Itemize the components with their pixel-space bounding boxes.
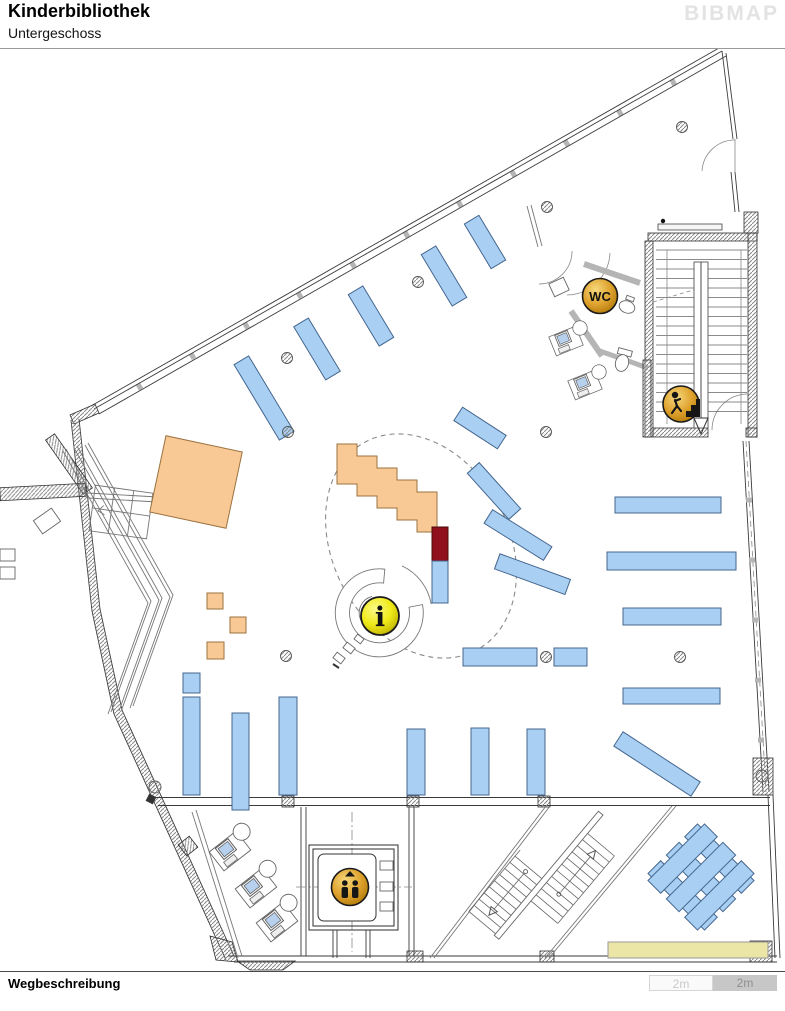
wc-marker[interactable]: WC bbox=[583, 279, 618, 314]
shelves-right-fan bbox=[454, 407, 587, 666]
stair-hall-lower bbox=[430, 789, 676, 962]
wegbeschreibung-link[interactable]: Wegbeschreibung bbox=[8, 976, 120, 991]
computer-workstation bbox=[232, 857, 286, 908]
bibmap-logo: BIBMAP bbox=[684, 2, 779, 26]
floorplan-canvas: WC i bbox=[0, 0, 785, 1011]
header: Kinderbibliothek Untergeschoss BIBMAP bbox=[0, 0, 785, 49]
page-title: Kinderbibliothek bbox=[8, 1, 150, 22]
wc-room bbox=[527, 205, 651, 437]
scale-bar: 2m 2m bbox=[649, 975, 777, 991]
floor-subtitle: Untergeschoss bbox=[8, 25, 101, 41]
elevator-marker[interactable] bbox=[332, 869, 369, 906]
shelves-right-column bbox=[607, 497, 736, 704]
northeast-wall-and-door bbox=[702, 51, 758, 233]
shelves-top-fan bbox=[234, 215, 506, 440]
info-marker-label: i bbox=[375, 602, 385, 633]
north-window-wall bbox=[70, 48, 726, 424]
wc-sink bbox=[617, 294, 638, 315]
stage-square bbox=[150, 436, 243, 529]
red-bar bbox=[432, 527, 448, 561]
computer-workstation bbox=[206, 820, 260, 871]
exterior-stub bbox=[237, 961, 295, 970]
info-marker[interactable]: i bbox=[361, 597, 399, 635]
columns bbox=[281, 122, 688, 663]
wc-marker-label: WC bbox=[589, 289, 611, 304]
stairwell-upper bbox=[645, 219, 757, 437]
podium-steps bbox=[337, 444, 437, 532]
inner-bars bbox=[432, 527, 448, 603]
stairs-marker[interactable] bbox=[663, 386, 700, 422]
orange-cubes bbox=[207, 593, 246, 659]
shelves-lattice bbox=[648, 824, 754, 930]
footer: Wegbeschreibung 2m 2m bbox=[0, 971, 785, 1011]
bench-strip bbox=[608, 942, 768, 958]
scale-segment-light: 2m bbox=[649, 975, 713, 991]
scale-segment-dark: 2m bbox=[713, 975, 777, 991]
opac-workstation bbox=[566, 363, 612, 400]
